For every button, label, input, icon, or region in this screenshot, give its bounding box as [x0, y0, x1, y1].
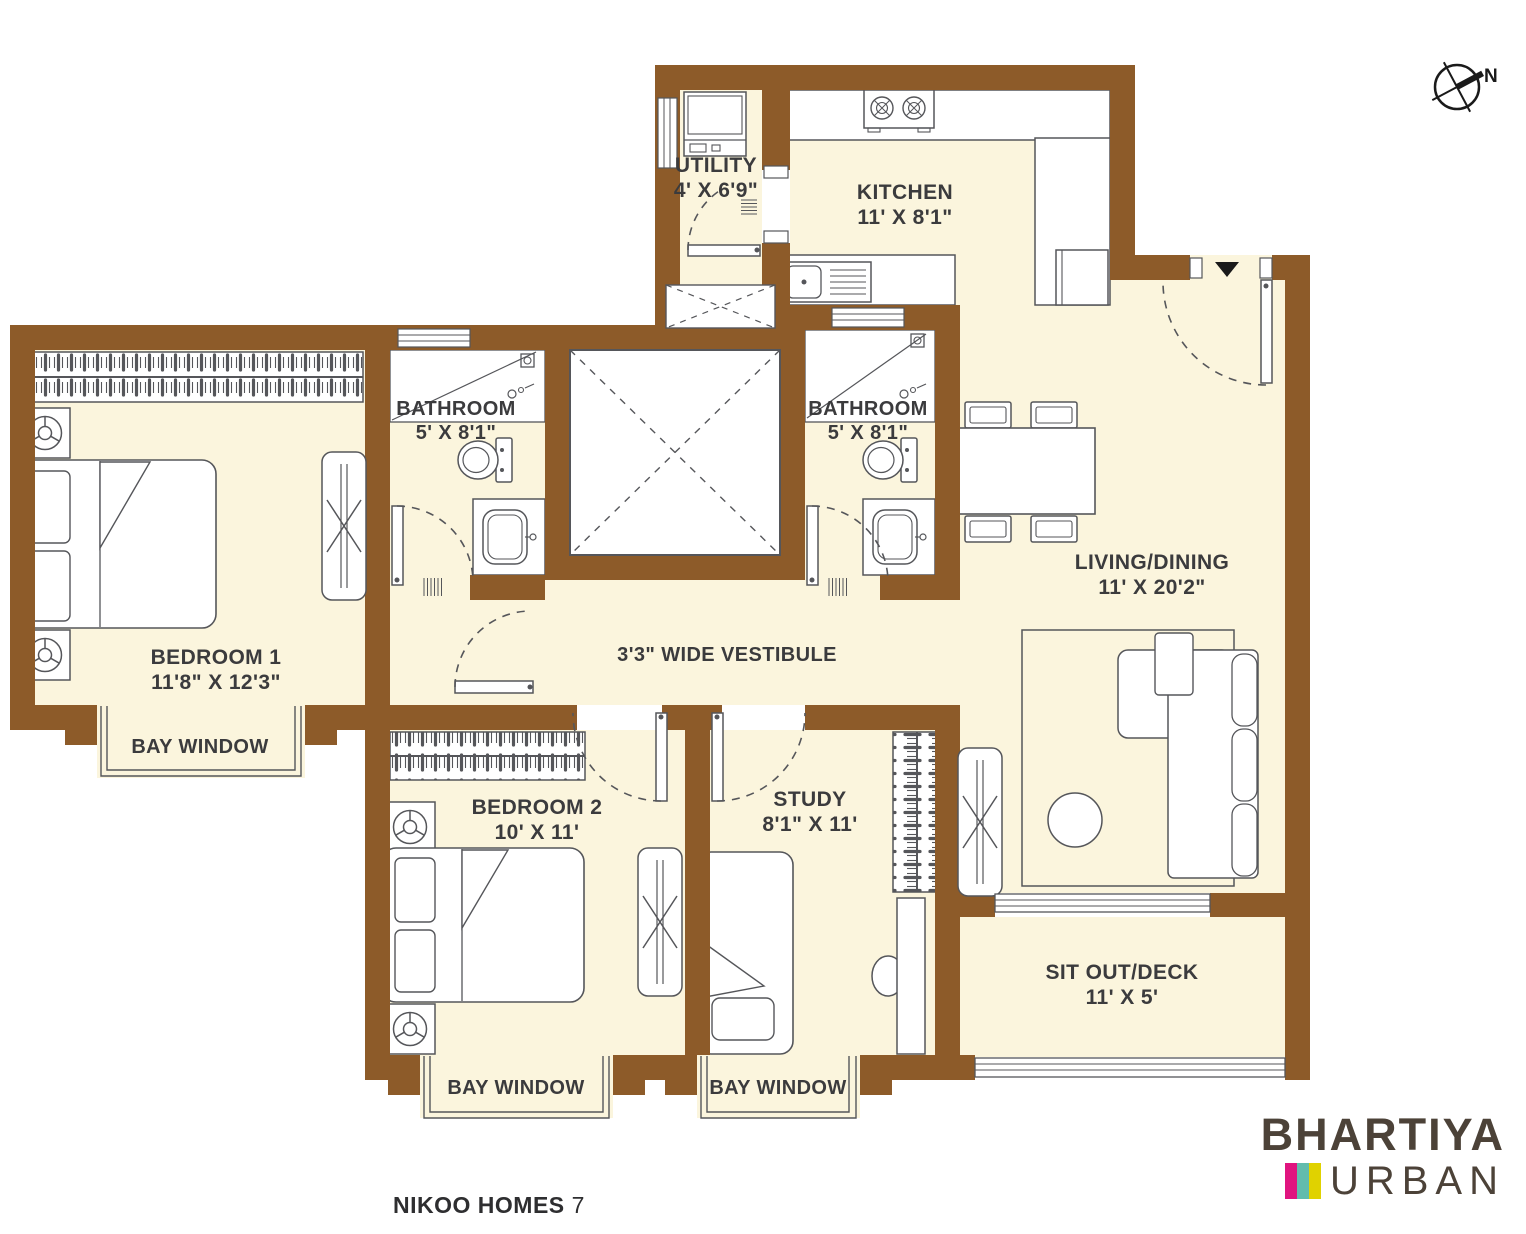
room-label-sit-out-deck: SIT OUT/DECK 11' X 5' [1046, 960, 1199, 1010]
nightstand-lamp [385, 1004, 435, 1054]
room-name: 3'3" WIDE VESTIBULE [617, 643, 837, 667]
room-name: LIVING/DINING [1075, 550, 1230, 575]
window-icon [958, 748, 1002, 896]
room-name: BEDROOM 1 [151, 645, 282, 670]
wardrobe [22, 352, 363, 402]
room-name: BAY WINDOW [709, 1076, 846, 1100]
shaft [570, 350, 780, 555]
brand-name: BHARTIYA [1261, 1112, 1505, 1158]
project-title: NIKOO HOMES7 [393, 1192, 585, 1219]
room-dims: 5' X 8'1" [396, 421, 515, 445]
fridge-icon [1056, 250, 1108, 305]
floorplan-drawing [0, 0, 1526, 1234]
compass-north-label: N [1484, 66, 1498, 88]
room-label-bedroom-2: BEDROOM 2 10' X 11' [472, 795, 603, 845]
double-bed [15, 460, 216, 628]
room-name: BAY WINDOW [131, 735, 268, 759]
room-name: BEDROOM 2 [472, 795, 603, 820]
stove-icon [864, 90, 934, 132]
room-dims: 11' X 5' [1046, 985, 1199, 1010]
room-name: BATHROOM [396, 397, 515, 421]
room-label-utility: UTILITY 4' X 6'9" [674, 153, 758, 203]
brand-bar-pink [1285, 1163, 1297, 1199]
washbasin-icon [473, 499, 545, 575]
brand-bar-yellow [1309, 1163, 1321, 1199]
brand-division: URBAN [1330, 1162, 1505, 1200]
label-bay-window-1: BAY WINDOW [131, 735, 268, 759]
room-dims: 10' X 11' [472, 820, 603, 845]
label-bay-window-3: BAY WINDOW [709, 1076, 846, 1100]
room-label-kitchen: KITCHEN 11' X 8'1" [857, 180, 953, 230]
double-bed [382, 848, 584, 1002]
label-bay-window-2: BAY WINDOW [447, 1076, 584, 1100]
room-label-bathroom-2: BATHROOM 5' X 8'1" [808, 397, 927, 445]
floorplan-page: N UTILITY 4' X 6'9" KITCHEN 11' X 8'1" B… [0, 0, 1526, 1234]
brand-logo: BHARTIYA URBAN [1261, 1112, 1505, 1200]
utility-duct [666, 285, 775, 328]
nightstand-lamp [385, 802, 435, 852]
room-name: SIT OUT/DECK [1046, 960, 1199, 985]
room-label-living-dining: LIVING/DINING 11' X 20'2" [1075, 550, 1230, 600]
room-label-bathroom-1: BATHROOM 5' X 8'1" [396, 397, 515, 445]
wardrobe [893, 732, 941, 892]
washbasin-icon [863, 499, 935, 575]
window-icon [322, 452, 366, 600]
room-dims: 8'1" X 11' [762, 812, 857, 837]
room-dims: 11' X 20'2" [1075, 575, 1230, 600]
label-vestibule: 3'3" WIDE VESTIBULE [617, 643, 837, 667]
room-name: STUDY [762, 787, 857, 812]
dining-table [955, 428, 1095, 514]
kitchen-sink-icon [783, 262, 871, 302]
room-dims: 4' X 6'9" [674, 178, 758, 203]
desk [897, 898, 925, 1054]
brand-bar-teal [1297, 1163, 1309, 1199]
project-name: NIKOO HOMES [393, 1192, 565, 1218]
project-unit-number: 7 [572, 1192, 585, 1218]
room-name: BAY WINDOW [447, 1076, 584, 1100]
wardrobe [390, 732, 585, 780]
room-dims: 11'8" X 12'3" [151, 670, 282, 695]
window-icon [832, 308, 904, 327]
coffee-table [1048, 793, 1102, 847]
window-icon [398, 329, 470, 347]
room-dims: 5' X 8'1" [808, 421, 927, 445]
room-name: BATHROOM [808, 397, 927, 421]
room-name: KITCHEN [857, 180, 953, 205]
room-label-study: STUDY 8'1" X 11' [762, 787, 857, 837]
room-label-bedroom-1: BEDROOM 1 11'8" X 12'3" [151, 645, 282, 695]
washing-machine-icon [684, 92, 746, 156]
window-icon [638, 848, 682, 996]
room-dims: 11' X 8'1" [857, 205, 953, 230]
single-bed [698, 852, 793, 1054]
room-name: UTILITY [674, 153, 758, 178]
